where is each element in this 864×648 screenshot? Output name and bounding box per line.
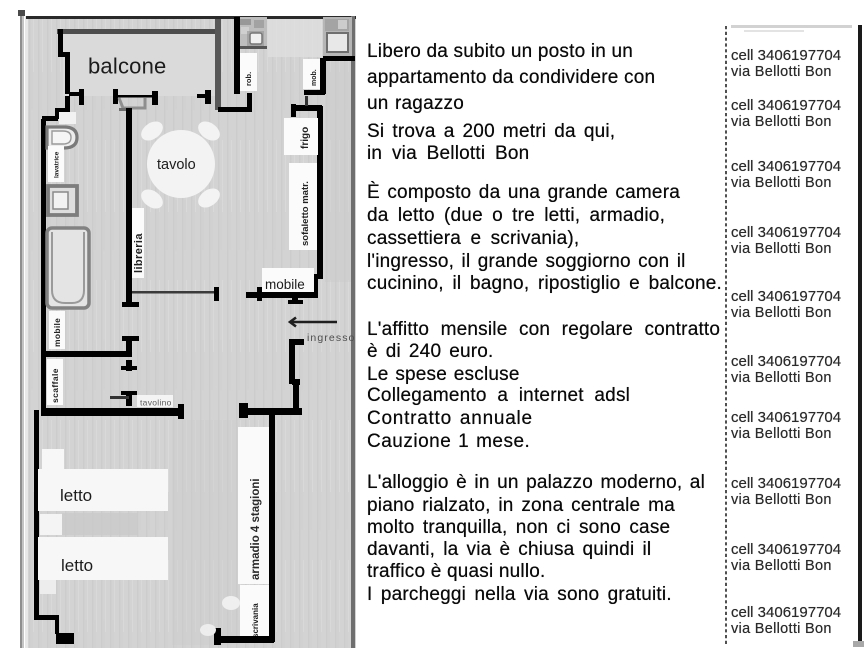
svg-text:armadio 4 stagioni: armadio 4 stagioni [250,478,262,580]
svg-text:frigo: frigo [300,127,311,149]
svg-text:lavatrice: lavatrice [54,151,61,178]
svg-text:sofaletto matr.: sofaletto matr. [300,181,311,246]
svg-text:tavolino: tavolino [140,398,172,408]
svg-text:scaffale: scaffale [50,368,60,403]
svg-text:tavolo: tavolo [157,157,196,173]
svg-text:mob.: mob. [311,69,318,86]
svg-text:balcone: balcone [88,54,166,79]
svg-text:rob.: rob. [244,72,253,86]
svg-text:mobile: mobile [52,318,62,347]
svg-text:ingresso: ingresso [307,332,356,344]
svg-text:letto: letto [60,486,92,505]
svg-text:scrivania: scrivania [251,603,260,638]
svg-text:letto: letto [61,556,93,575]
svg-text:mobile: mobile [265,277,305,292]
svg-text:libreria: libreria [133,233,145,273]
